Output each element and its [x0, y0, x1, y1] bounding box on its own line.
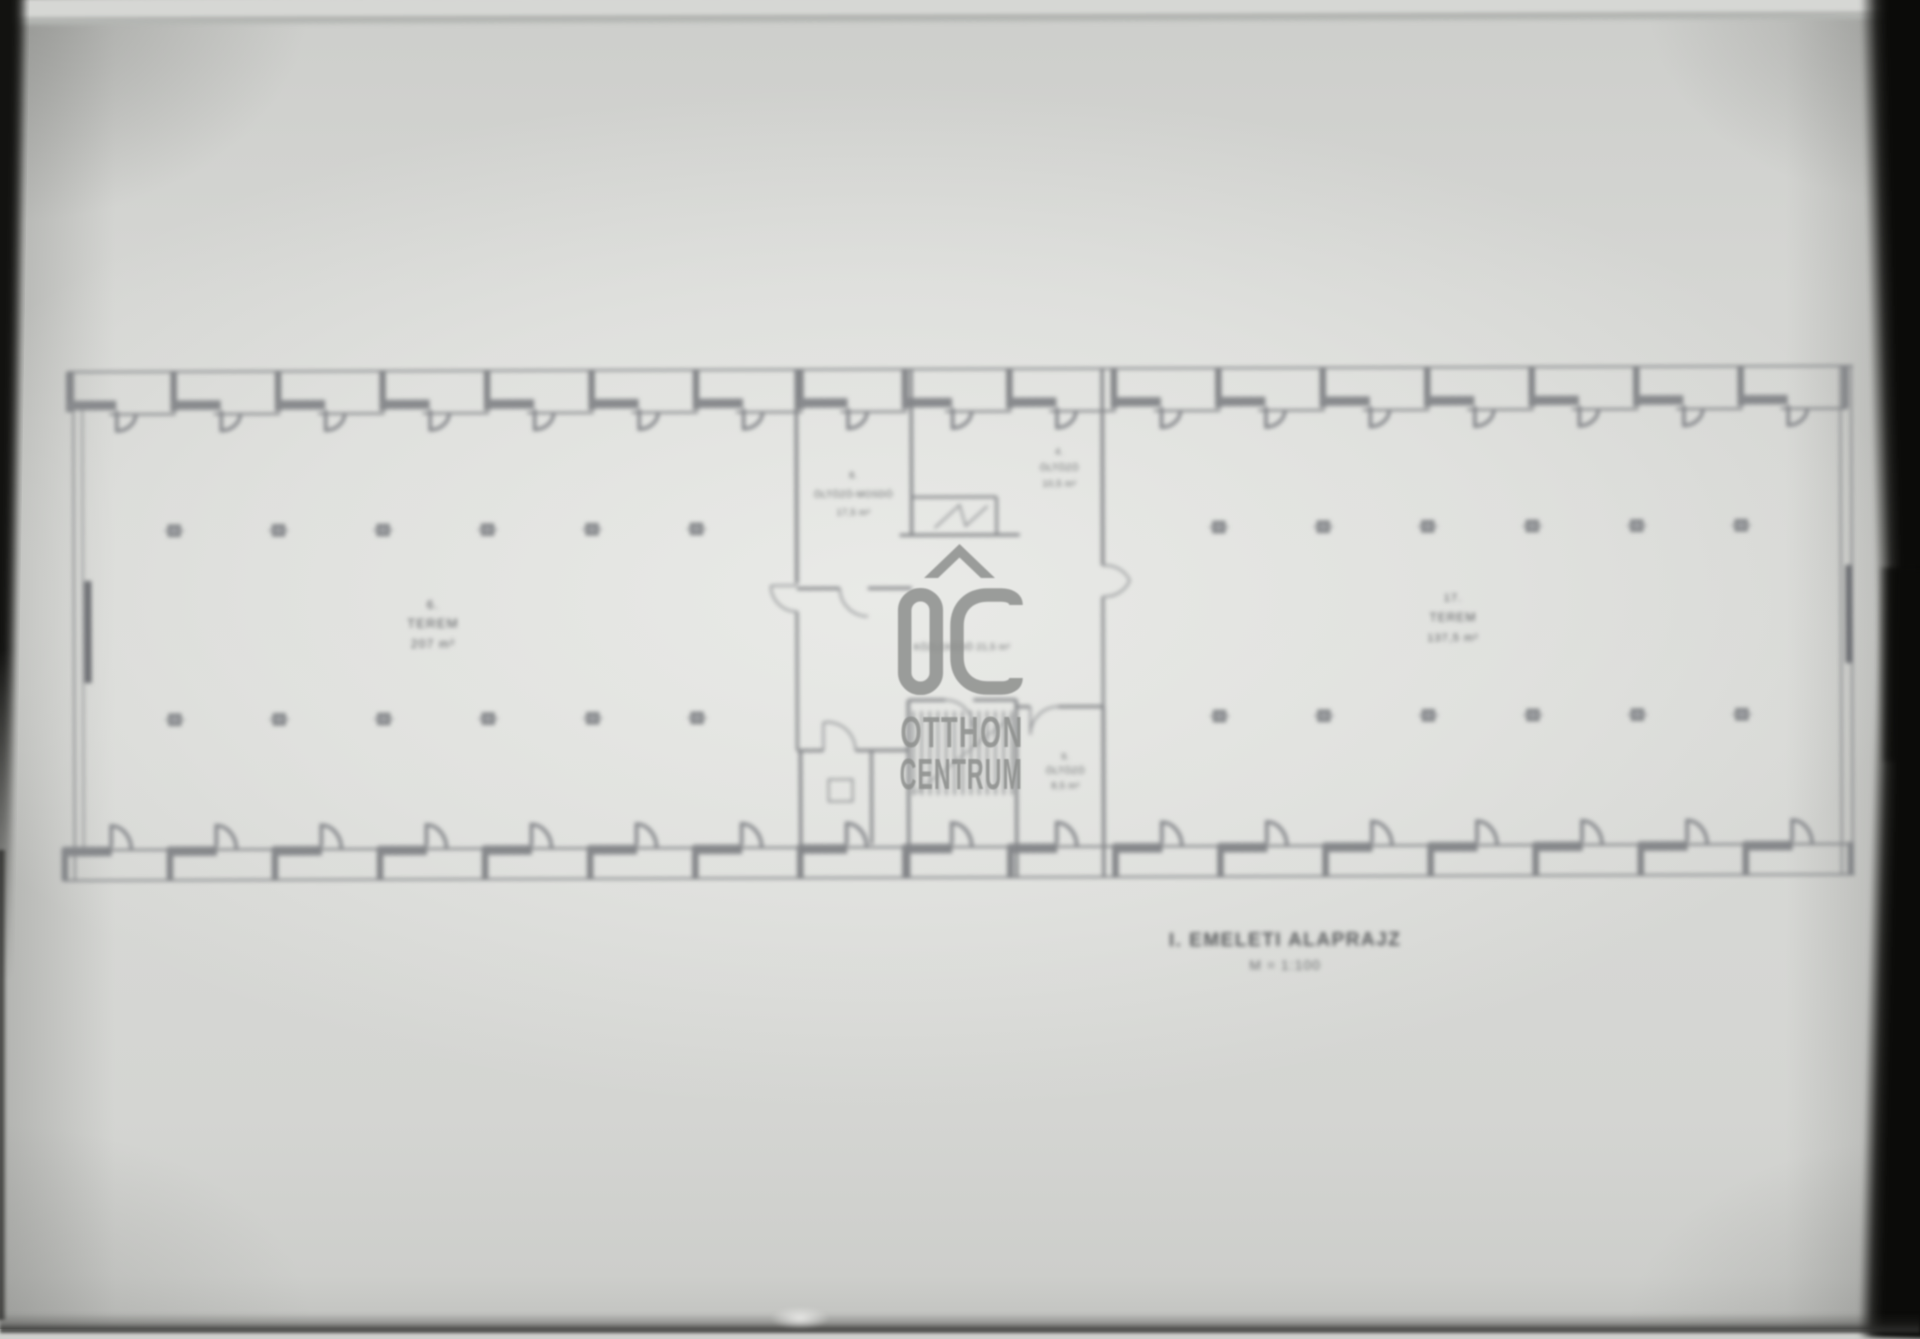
- svg-text:CENTRUM: CENTRUM: [900, 750, 1023, 799]
